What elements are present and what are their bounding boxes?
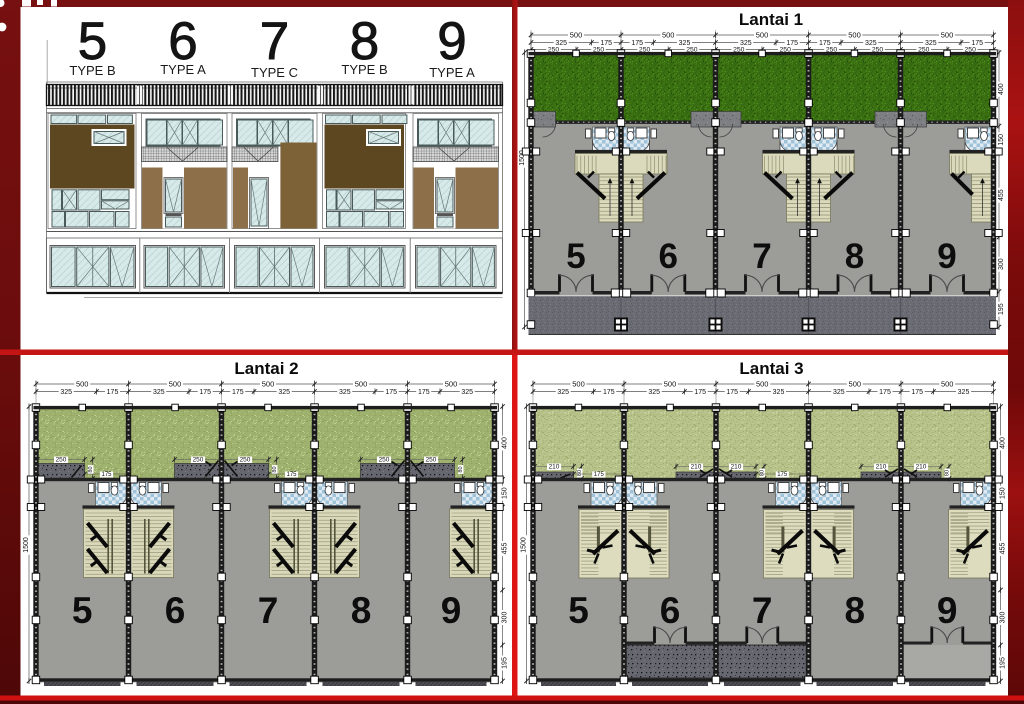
- svg-text:80: 80: [945, 470, 951, 476]
- svg-text:9: 9: [937, 237, 956, 276]
- svg-text:175: 175: [971, 40, 983, 47]
- svg-text:150: 150: [502, 487, 509, 499]
- svg-text:175: 175: [777, 472, 788, 478]
- svg-text:500: 500: [848, 31, 861, 40]
- svg-text:175: 175: [286, 472, 297, 478]
- svg-text:325: 325: [773, 389, 785, 396]
- svg-text:175: 175: [726, 389, 738, 396]
- svg-text:150: 150: [1000, 487, 1007, 499]
- svg-text:500: 500: [664, 380, 677, 389]
- svg-text:325: 325: [557, 389, 569, 396]
- svg-text:400: 400: [1000, 437, 1007, 449]
- svg-text:175: 175: [101, 472, 112, 478]
- svg-text:175: 175: [107, 389, 119, 396]
- svg-text:300: 300: [1000, 612, 1007, 624]
- svg-text:325: 325: [958, 389, 970, 396]
- svg-text:7: 7: [752, 237, 771, 276]
- svg-text:175: 175: [600, 40, 612, 47]
- svg-text:175: 175: [879, 389, 891, 396]
- svg-text:175: 175: [418, 389, 430, 396]
- svg-text:325: 325: [339, 389, 351, 396]
- svg-text:6: 6: [658, 237, 677, 276]
- svg-text:455: 455: [502, 543, 509, 555]
- svg-text:250: 250: [193, 457, 204, 464]
- svg-text:500: 500: [756, 380, 769, 389]
- svg-text:Lantai 3: Lantai 3: [739, 359, 803, 378]
- svg-text:5: 5: [566, 237, 585, 276]
- svg-text:8: 8: [845, 237, 864, 276]
- svg-text:195: 195: [502, 657, 509, 669]
- svg-text:5: 5: [568, 590, 589, 631]
- svg-text:195: 195: [998, 303, 1005, 315]
- svg-text:175: 175: [911, 389, 923, 396]
- svg-text:5: 5: [72, 590, 93, 631]
- svg-text:Lantai 2: Lantai 2: [234, 359, 298, 378]
- svg-text:1500: 1500: [23, 537, 30, 553]
- svg-text:8: 8: [845, 590, 866, 631]
- svg-text:80: 80: [760, 470, 766, 476]
- svg-text:210: 210: [916, 464, 927, 471]
- svg-text:210: 210: [731, 464, 742, 471]
- svg-text:210: 210: [876, 464, 887, 471]
- svg-text:175: 175: [385, 389, 397, 396]
- svg-text:175: 175: [786, 40, 798, 47]
- svg-text:325: 325: [555, 40, 567, 47]
- svg-text:1500: 1500: [521, 537, 528, 553]
- svg-text:175: 175: [694, 389, 706, 396]
- svg-text:6: 6: [165, 590, 186, 631]
- svg-text:325: 325: [648, 389, 660, 396]
- svg-text:500: 500: [445, 380, 458, 389]
- svg-text:6: 6: [660, 590, 681, 631]
- svg-text:500: 500: [169, 380, 182, 389]
- svg-text:8: 8: [351, 590, 372, 631]
- svg-text:300: 300: [998, 258, 1005, 270]
- svg-text:TYPE B: TYPE B: [341, 62, 387, 77]
- svg-text:9: 9: [441, 590, 462, 631]
- svg-text:175: 175: [594, 472, 605, 478]
- svg-text:9: 9: [937, 590, 958, 631]
- svg-text:250: 250: [379, 457, 390, 464]
- svg-text:400: 400: [998, 83, 1005, 95]
- svg-text:500: 500: [941, 31, 954, 40]
- svg-text:7: 7: [260, 12, 289, 71]
- svg-text:80: 80: [88, 466, 94, 472]
- svg-text:455: 455: [1000, 543, 1007, 555]
- svg-text:500: 500: [572, 380, 585, 389]
- svg-text:300: 300: [502, 612, 509, 624]
- svg-text:80: 80: [577, 470, 583, 476]
- svg-text:325: 325: [679, 40, 691, 47]
- svg-text:TYPE B: TYPE B: [69, 63, 115, 78]
- svg-text:175: 175: [199, 389, 211, 396]
- svg-text:500: 500: [76, 380, 89, 389]
- svg-text:TYPE A: TYPE A: [160, 62, 206, 77]
- svg-text:9: 9: [437, 12, 466, 71]
- svg-text:7: 7: [752, 590, 773, 631]
- svg-text:325: 325: [60, 389, 72, 396]
- svg-text:250: 250: [240, 457, 251, 464]
- svg-text:500: 500: [756, 31, 769, 40]
- svg-text:175: 175: [232, 389, 244, 396]
- svg-text:175: 175: [603, 389, 615, 396]
- svg-text:210: 210: [691, 464, 702, 471]
- svg-text:500: 500: [262, 380, 275, 389]
- svg-text:325: 325: [740, 40, 752, 47]
- svg-text:175: 175: [819, 40, 831, 47]
- svg-text:210: 210: [549, 464, 560, 471]
- svg-text:250: 250: [56, 457, 67, 464]
- svg-text:195: 195: [1000, 657, 1007, 669]
- svg-text:150: 150: [998, 134, 1005, 146]
- svg-text:7: 7: [258, 590, 279, 631]
- svg-text:500: 500: [849, 380, 862, 389]
- svg-text:500: 500: [941, 380, 954, 389]
- svg-text:455: 455: [998, 189, 1005, 201]
- svg-text:325: 325: [925, 40, 937, 47]
- svg-text:400: 400: [502, 437, 509, 449]
- svg-text:500: 500: [662, 31, 675, 40]
- svg-text:250: 250: [426, 457, 437, 464]
- svg-text:500: 500: [570, 31, 583, 40]
- svg-text:175: 175: [631, 40, 643, 47]
- svg-text:325: 325: [153, 389, 165, 396]
- svg-text:80: 80: [458, 466, 464, 472]
- svg-text:325: 325: [833, 389, 845, 396]
- svg-text:325: 325: [278, 389, 290, 396]
- svg-text:325: 325: [865, 40, 877, 47]
- svg-text:TYPE C: TYPE C: [251, 65, 298, 80]
- svg-text:TYPE A: TYPE A: [429, 65, 475, 80]
- svg-text:80: 80: [272, 466, 278, 472]
- svg-text:Lantai 1: Lantai 1: [739, 10, 803, 29]
- svg-text:500: 500: [355, 380, 368, 389]
- svg-text:325: 325: [461, 389, 473, 396]
